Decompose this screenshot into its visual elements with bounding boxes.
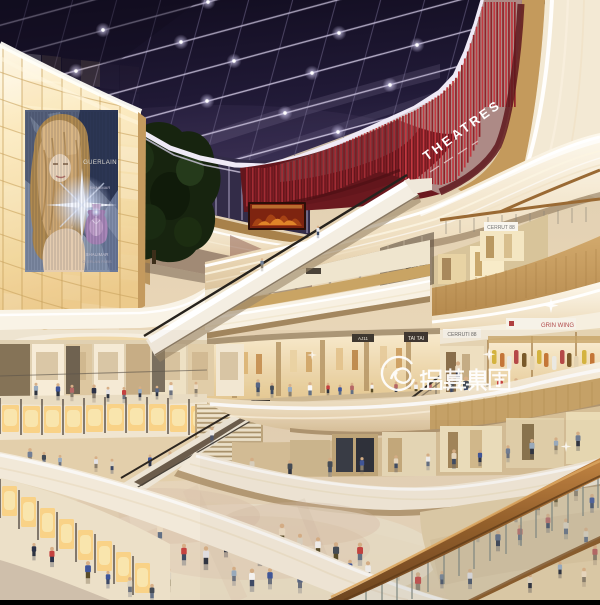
svg-text:CERRUT 88: CERRUT 88 (487, 225, 515, 231)
svg-text:SHALIMAR: SHALIMAR (90, 185, 111, 190)
svg-text:GRIN WING: GRIN WING (541, 323, 574, 329)
svg-text:GUERLAIN: GUERLAIN (83, 160, 117, 166)
